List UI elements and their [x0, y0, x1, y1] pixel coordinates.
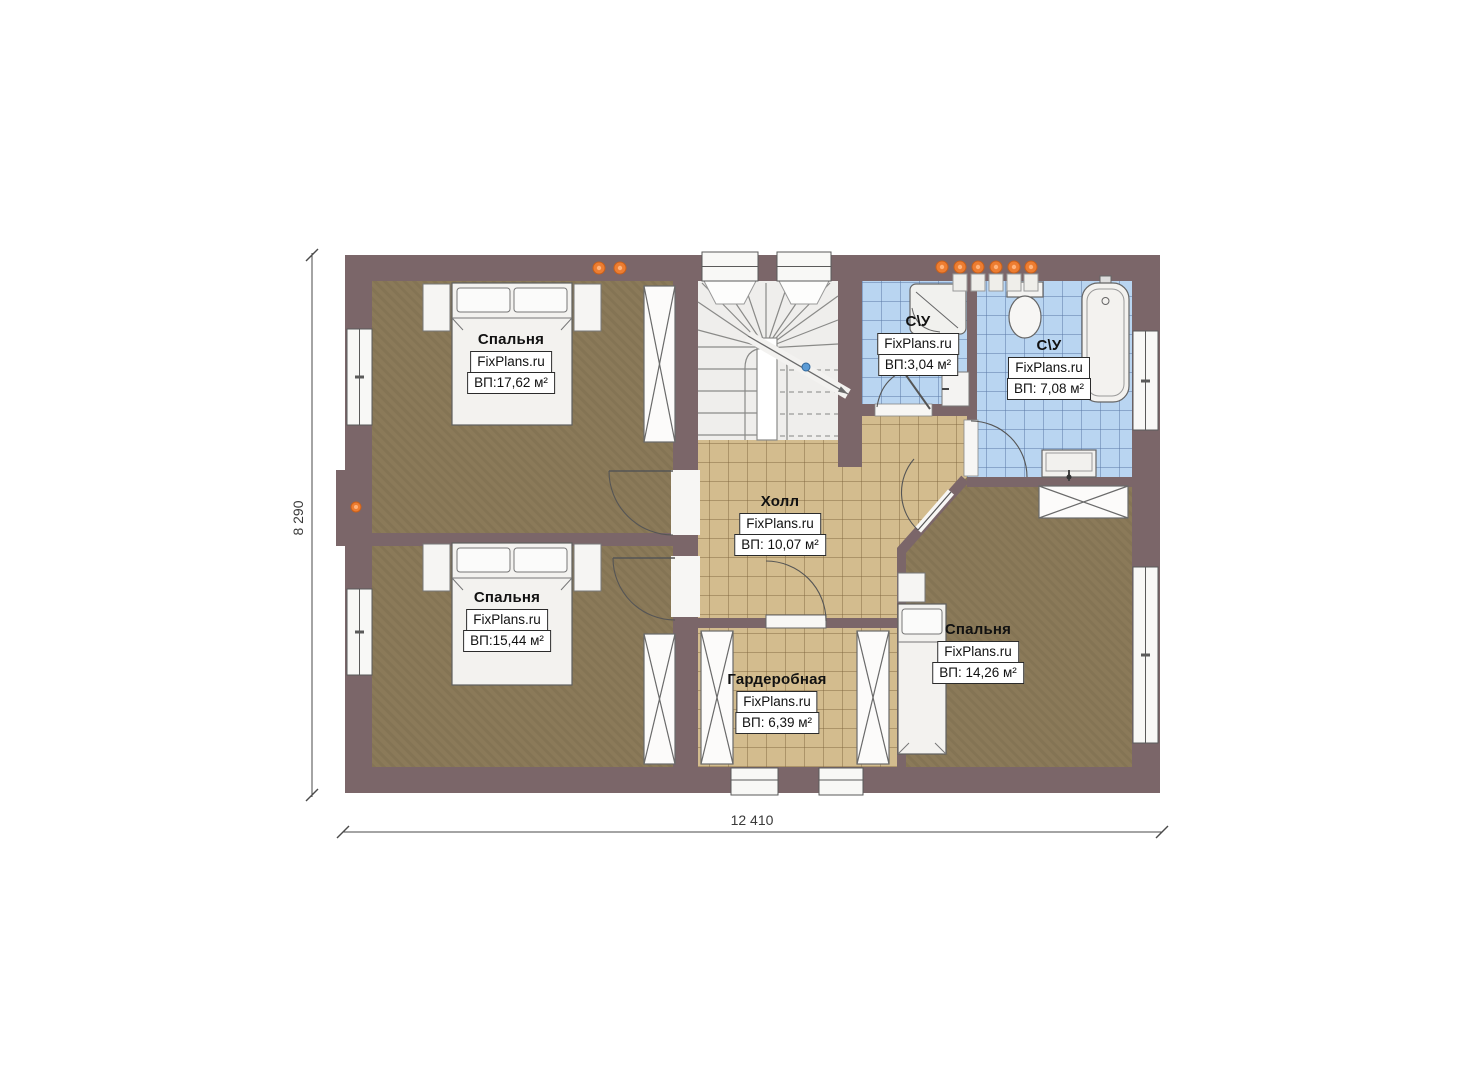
area-box: ВП: 6,39 м² [735, 712, 819, 734]
window-left-bedroom-bottom [347, 589, 372, 675]
room-name: Спальня [474, 589, 540, 606]
window-left-bedroom-top [347, 329, 372, 425]
room-label-bedroom-right: Спальня FixPlans.ru ВП: 14,26 м² [932, 621, 1024, 684]
nightstand [423, 284, 450, 331]
wardrobe-bedroom-right [1039, 486, 1128, 518]
floor-plan-canvas: Спальня FixPlans.ru ВП:17,62 м² Спальня … [0, 0, 1474, 1080]
chimney-dot [351, 502, 361, 512]
pillow [514, 288, 567, 312]
sink-icon [1042, 450, 1096, 481]
window-wardrobe-room-1 [731, 768, 778, 795]
brand-box: FixPlans.ru [466, 609, 548, 631]
radiator-dots-left [593, 262, 626, 274]
nightstand [898, 573, 925, 602]
pillow [457, 548, 510, 572]
window-stairs-2 [777, 252, 831, 281]
wardrobe-bedroom-bottom-left [644, 634, 675, 764]
room-name: Гардеробная [727, 671, 826, 688]
nightstand [574, 284, 601, 331]
door-bedroom-bottom-left [613, 556, 700, 620]
pillow [457, 288, 510, 312]
window-bathroom-large [1133, 331, 1158, 430]
wardrobe-bedroom-top-left [644, 286, 675, 442]
room-label-bedroom-top-left: Спальня FixPlans.ru ВП:17,62 м² [467, 331, 555, 394]
stair-straight-steps [698, 347, 757, 435]
brand-box: FixPlans.ru [470, 351, 552, 373]
door-bathroom-large [964, 420, 1027, 477]
area-box: ВП: 14,26 м² [932, 662, 1024, 684]
room-label-bathroom-small: С\У FixPlans.ru ВП:3,04 м² [877, 313, 959, 376]
room-name: С\У [906, 313, 931, 330]
brand-box: FixPlans.ru [736, 691, 818, 713]
window-wardrobe-room-2 [819, 768, 863, 795]
wardrobe-room-cabinet-right [857, 631, 889, 764]
area-box: ВП:3,04 м² [878, 354, 958, 376]
room-label-bedroom-bottom-left: Спальня FixPlans.ru ВП:15,44 м² [463, 589, 551, 652]
room-name: Холл [761, 493, 799, 510]
area-box: ВП: 7,08 м² [1007, 378, 1091, 400]
area-box: ВП: 10,07 м² [734, 534, 826, 556]
brand-box: FixPlans.ru [739, 513, 821, 535]
area-box: ВП:15,44 м² [463, 630, 551, 652]
room-name: С\У [1037, 337, 1062, 354]
door-bathroom-small [875, 371, 932, 416]
door-bedroom-right-diagonal [901, 459, 965, 551]
window-bedroom-right [1133, 567, 1158, 743]
room-label-hall: Холл FixPlans.ru ВП: 10,07 м² [734, 493, 826, 556]
pillow [514, 548, 567, 572]
room-name: Спальня [478, 331, 544, 348]
nightstand [423, 544, 450, 591]
door-bedroom-top-left [609, 470, 700, 535]
room-name: Спальня [945, 621, 1011, 638]
dimension-height-label: 8 290 [290, 488, 306, 548]
window-stairs-1 [702, 252, 758, 281]
brand-box: FixPlans.ru [877, 333, 959, 355]
door-wardrobe-room [766, 561, 826, 628]
room-label-wardrobe-room: Гардеробная FixPlans.ru ВП: 6,39 м² [727, 671, 826, 734]
dimension-width-label: 12 410 [722, 812, 782, 828]
bathroom-cabinet-icon [942, 372, 969, 406]
nightstand [574, 544, 601, 591]
area-box: ВП:17,62 м² [467, 372, 555, 394]
room-label-bathroom-large: С\У FixPlans.ru ВП: 7,08 м² [1007, 337, 1091, 400]
dimension-line-vertical [306, 249, 318, 801]
stair-direction-dot [802, 363, 810, 371]
brand-box: FixPlans.ru [1008, 357, 1090, 379]
brand-box: FixPlans.ru [937, 641, 1019, 663]
